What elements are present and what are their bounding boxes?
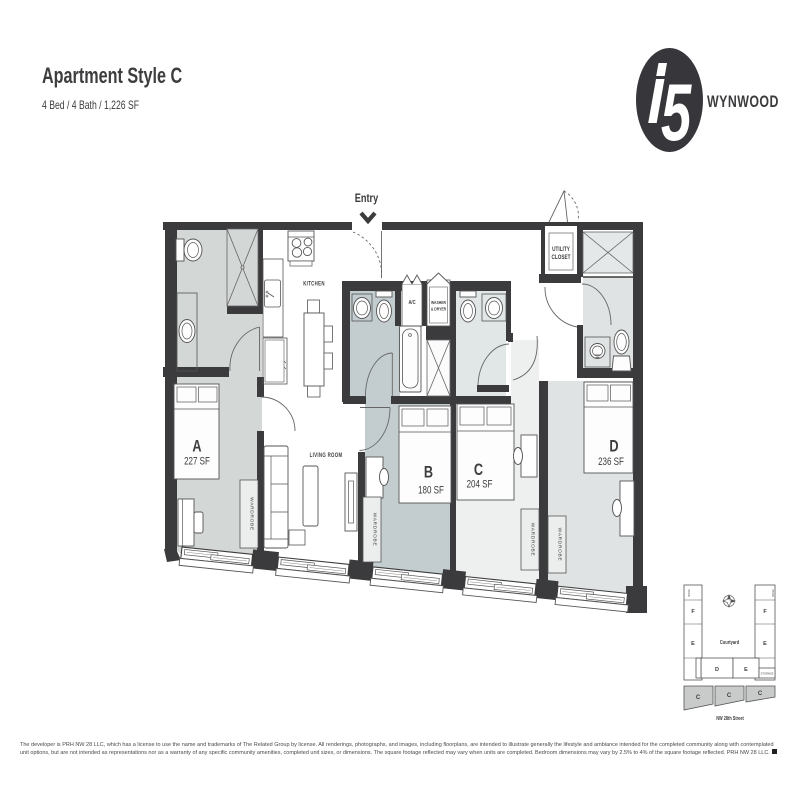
svg-text:& DRYER: & DRYER: [431, 306, 446, 312]
svg-text:KITCHEN: KITCHEN: [303, 281, 325, 288]
svg-text:A/C: A/C: [408, 300, 416, 306]
svg-text:B: B: [424, 464, 433, 482]
svg-text:UTILITY: UTILITY: [552, 247, 570, 254]
svg-text:C: C: [758, 691, 763, 697]
svg-text:E: E: [744, 667, 748, 673]
svg-text:CLOSET: CLOSET: [552, 255, 572, 262]
svg-text:Courtyard: Courtyard: [720, 640, 739, 646]
svg-text:STAIR: STAIR: [687, 589, 691, 597]
svg-text:NW 28th Street: NW 28th Street: [716, 715, 744, 721]
svg-text:STORAGE: STORAGE: [761, 672, 774, 676]
svg-text:C: C: [696, 695, 701, 701]
svg-text:WARDROBE: WARDROBE: [249, 497, 255, 531]
svg-text:E: E: [763, 641, 767, 647]
svg-text:236 SF: 236 SF: [598, 456, 624, 469]
svg-text:180 SF: 180 SF: [418, 484, 444, 497]
svg-text:Entry: Entry: [355, 193, 379, 205]
svg-text:D: D: [715, 667, 719, 673]
svg-text:A: A: [192, 438, 201, 456]
svg-text:C: C: [474, 462, 483, 480]
svg-text:WASHER: WASHER: [431, 300, 446, 306]
svg-text:WARDROBE: WARDROBE: [372, 513, 378, 547]
svg-text:C: C: [727, 693, 732, 699]
svg-text:WARDROBE: WARDROBE: [557, 528, 563, 562]
svg-text:227 SF: 227 SF: [184, 455, 210, 468]
svg-text:WYNWOOD: WYNWOOD: [707, 93, 779, 111]
svg-text:D: D: [609, 438, 618, 456]
svg-text:WARDROBE: WARDROBE: [530, 523, 536, 557]
svg-text:LIVING ROOM: LIVING ROOM: [310, 452, 343, 459]
svg-text:5: 5: [661, 67, 692, 157]
svg-text:STAIR: STAIR: [771, 589, 775, 597]
svg-text:204 SF: 204 SF: [467, 478, 493, 491]
svg-text:E: E: [691, 641, 695, 647]
